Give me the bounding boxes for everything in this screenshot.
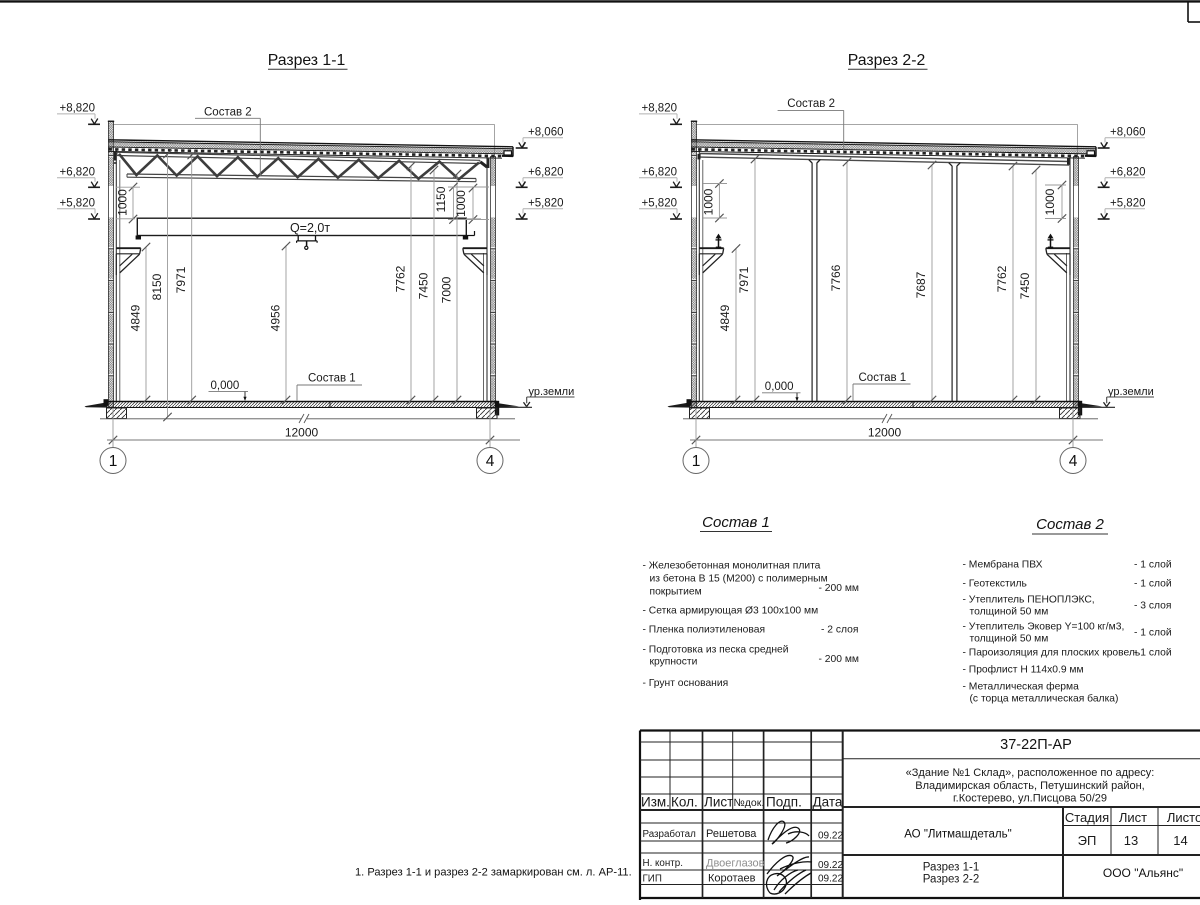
svg-text:- Грунт основания: - Грунт основания: [643, 678, 729, 689]
svg-text:7450: 7450: [1018, 272, 1032, 299]
svg-text:- Утеплитель Эковер Y=100 кг/м: - Утеплитель Эковер Y=100 кг/м3,: [963, 622, 1125, 633]
svg-text:АО "Литмашдеталь": АО "Литмашдеталь": [904, 829, 1011, 841]
svg-text:ГИП: ГИП: [643, 874, 662, 885]
svg-text:- 1 слой: - 1 слой: [1134, 579, 1172, 590]
svg-text:ООО "Альянс": ООО "Альянс": [1103, 866, 1183, 880]
svg-text:Разрез 1-1: Разрез 1-1: [923, 862, 979, 874]
svg-text:Разрез 2-2: Разрез 2-2: [923, 874, 979, 886]
svg-text:№док.: №док.: [734, 797, 765, 809]
svg-text:- 3 слоя: - 3 слоя: [1134, 601, 1171, 612]
svg-text:Двоеглазов: Двоеглазов: [706, 858, 765, 870]
svg-text:- 1 слой: - 1 слой: [1134, 560, 1172, 571]
svg-text:Состав 2: Состав 2: [204, 107, 252, 119]
svg-text:- 2 слоя: - 2 слоя: [821, 625, 858, 636]
svg-text:09.22: 09.22: [818, 874, 843, 885]
svg-text:0,000: 0,000: [765, 381, 794, 393]
svg-text:7450: 7450: [417, 272, 431, 299]
svg-text:13: 13: [1124, 833, 1138, 848]
svg-text:7762: 7762: [995, 265, 1009, 292]
svg-text:1000: 1000: [454, 190, 468, 217]
svg-text:7762: 7762: [394, 265, 408, 292]
svg-text:Лист: Лист: [704, 795, 733, 810]
svg-text:+6,820: +6,820: [60, 166, 96, 178]
svg-text:7971: 7971: [737, 266, 751, 293]
svg-text:09.22: 09.22: [818, 831, 843, 842]
svg-text:1000: 1000: [1043, 188, 1057, 215]
svg-text:Листов: Листов: [1167, 810, 1200, 825]
svg-text:- Пароизоляция для плоских кро: - Пароизоляция для плоских кровель: [963, 648, 1141, 659]
svg-text:+5,820: +5,820: [60, 197, 96, 209]
svg-text:Состав 1: Состав 1: [308, 373, 356, 385]
svg-text:Стадия: Стадия: [1065, 810, 1109, 825]
svg-text:- Подготовка из песка средней: - Подготовка из песка средней: [643, 645, 789, 656]
svg-text:Состав 1: Состав 1: [702, 514, 770, 531]
svg-text:14: 14: [1173, 833, 1187, 848]
svg-text:ур.земли: ур.земли: [529, 386, 575, 398]
svg-text:7687: 7687: [914, 271, 928, 298]
svg-text:Подп.: Подп.: [766, 795, 802, 810]
svg-text:0,000: 0,000: [211, 380, 240, 392]
svg-text:ЭП: ЭП: [1078, 833, 1097, 848]
svg-text:- 1 слой: - 1 слой: [1134, 628, 1172, 639]
svg-text:7971: 7971: [174, 266, 188, 293]
svg-text:7000: 7000: [440, 276, 454, 303]
svg-text:4849: 4849: [129, 304, 143, 331]
svg-text:4849: 4849: [718, 304, 732, 331]
svg-text:+5,820: +5,820: [528, 197, 564, 209]
svg-text:Q=2,0т: Q=2,0т: [290, 221, 330, 235]
svg-text:толщиной 50 мм: толщиной 50 мм: [970, 607, 1049, 618]
svg-text:1000: 1000: [702, 188, 716, 215]
svg-text:Н. контр.: Н. контр.: [643, 858, 683, 869]
svg-text:+8,060: +8,060: [1110, 126, 1146, 138]
svg-text:ур.земли: ур.земли: [1108, 386, 1154, 398]
svg-text:8150: 8150: [150, 273, 164, 300]
svg-text:Разрез 1-1: Разрез 1-1: [268, 52, 346, 69]
svg-text:1150: 1150: [434, 186, 448, 212]
svg-text:+8,060: +8,060: [528, 126, 564, 138]
svg-text:Владимирская область, Петушинс: Владимирская область, Петушинский район,: [915, 780, 1144, 792]
svg-text:12000: 12000: [285, 426, 319, 440]
svg-text:+6,820: +6,820: [1110, 166, 1146, 178]
svg-text:Кол.: Кол.: [671, 795, 698, 810]
svg-text:4: 4: [486, 453, 495, 470]
svg-text:Лист: Лист: [1119, 810, 1147, 825]
svg-text:- Пленка полиэтиленовая: - Пленка полиэтиленовая: [643, 625, 766, 636]
svg-text:1: 1: [692, 453, 701, 470]
svg-text:+6,820: +6,820: [642, 166, 678, 178]
svg-text:толщиной 50 мм: толщиной 50 мм: [970, 634, 1049, 645]
svg-text:09.22: 09.22: [818, 860, 843, 871]
svg-text:37-22П-АР: 37-22П-АР: [1000, 737, 1072, 753]
svg-text:7766: 7766: [829, 264, 843, 291]
svg-text:+6,820: +6,820: [528, 166, 564, 178]
svg-text:- Утеплитель ПЕНОПЛЭКС,: - Утеплитель ПЕНОПЛЭКС,: [963, 595, 1095, 606]
svg-text:Состав 1: Состав 1: [859, 372, 907, 384]
svg-text:крупности: крупности: [650, 657, 698, 668]
svg-text:- Профлист Н 114x0.9 мм: - Профлист Н 114x0.9 мм: [963, 664, 1084, 676]
svg-text:1. Разрез 1-1 и разрез 2-2 зам: 1. Разрез 1-1 и разрез 2-2 замаркирован …: [355, 867, 632, 879]
svg-text:«Здание №1 Склад», расположенн: «Здание №1 Склад», расположенное по адре…: [906, 767, 1155, 779]
svg-text:г.Костерево, ул.Писцова 50/29: г.Костерево, ул.Писцова 50/29: [953, 793, 1107, 805]
svg-text:- Сетка армирующая Ø3 100x100: - Сетка армирующая Ø3 100x100 мм: [643, 606, 819, 617]
svg-text:+5,820: +5,820: [642, 197, 678, 209]
svg-text:- 1 слой: - 1 слой: [1134, 648, 1172, 659]
svg-text:покрытием: покрытием: [650, 587, 702, 598]
svg-text:12000: 12000: [868, 426, 902, 440]
svg-text:+8,820: +8,820: [642, 102, 678, 114]
svg-text:Дата: Дата: [813, 795, 843, 810]
svg-text:- Геотекстиль: - Геотекстиль: [963, 579, 1027, 590]
svg-text:Состав 2: Состав 2: [787, 98, 835, 110]
svg-text:4: 4: [1069, 453, 1078, 470]
svg-text:1: 1: [109, 453, 118, 470]
svg-text:+8,820: +8,820: [60, 102, 96, 114]
svg-text:Решетова: Решетова: [706, 828, 757, 840]
svg-text:из бетона В 15 (М200) с полиме: из бетона В 15 (М200) с полимерным: [650, 573, 828, 585]
svg-text:(с торца металлическая балка): (с торца металлическая балка): [970, 693, 1119, 705]
svg-text:- Металлическая ферма: - Металлическая ферма: [963, 681, 1080, 693]
svg-text:1000: 1000: [116, 189, 130, 216]
svg-text:- 200 мм: - 200 мм: [819, 583, 860, 594]
svg-text:- Мембрана ПВХ: - Мембрана ПВХ: [963, 559, 1043, 571]
svg-text:Состав 2: Состав 2: [1036, 516, 1104, 533]
svg-text:Изм.: Изм.: [641, 795, 670, 810]
svg-text:Коротаев: Коротаев: [708, 873, 756, 885]
svg-text:+5,820: +5,820: [1110, 197, 1146, 209]
svg-text:4956: 4956: [269, 304, 283, 331]
svg-text:- Железобетонная монолитная п: - Железобетонная монолитная плита: [643, 560, 821, 572]
svg-text:- 200 мм: - 200 мм: [819, 654, 860, 665]
svg-text:Разработал: Разработал: [643, 829, 697, 840]
svg-text:Разрез 2-2: Разрез 2-2: [848, 52, 926, 69]
